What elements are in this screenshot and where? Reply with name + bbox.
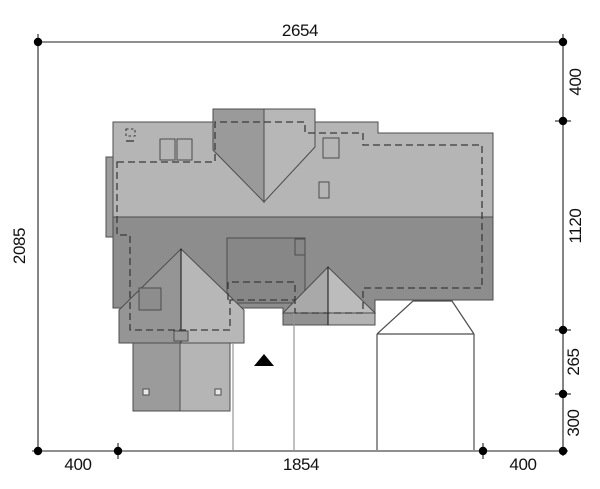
porch-post-left — [143, 389, 149, 395]
vent-north-right — [319, 182, 329, 198]
chimney-north-right — [323, 138, 339, 158]
dim-dot — [559, 38, 567, 46]
dim-label-bottom-3: 400 — [509, 455, 536, 474]
dim-label-left-total: 2085 — [10, 228, 29, 264]
dim-label-bottom-1: 400 — [64, 455, 91, 474]
south-roof-box-notch — [295, 239, 305, 255]
north-arrow — [254, 354, 274, 366]
dim-dot — [34, 38, 42, 46]
dim-dot — [559, 390, 567, 398]
chimney-north-left-b — [177, 139, 192, 160]
dim-dot — [559, 447, 567, 455]
roof-plan-canvas: 2654 2085 400 1120 265 300 400 1854 400 — [0, 0, 600, 489]
chimney-north-left-a — [160, 139, 175, 160]
pergola-outline — [377, 301, 474, 450]
house-roof — [106, 109, 493, 411]
dim-label-right-1: 400 — [566, 68, 585, 95]
porch-roof-west-half — [133, 343, 180, 411]
wing-eave-box — [174, 331, 188, 341]
dim-dot — [114, 447, 122, 455]
dim-dot — [34, 447, 42, 455]
roof-plan-drawing: 2654 2085 400 1120 265 300 400 1854 400 — [0, 0, 600, 489]
porch-post-right — [215, 389, 221, 395]
dim-label-bottom-2: 1854 — [283, 455, 319, 474]
dim-label-right-3: 265 — [564, 348, 583, 375]
dim-label-top-total: 2654 — [282, 21, 318, 40]
dim-label-right-2: 1120 — [566, 209, 585, 244]
south-gable-eave-right — [328, 313, 375, 325]
wing-chimney — [139, 288, 161, 310]
south-gable-eave-left — [283, 313, 328, 325]
porch-roof-east-half — [180, 343, 230, 411]
dim-dot — [559, 326, 567, 334]
dim-dot — [559, 117, 567, 125]
pergola-lines — [377, 301, 474, 450]
dim-label-right-4: 300 — [564, 409, 583, 436]
south-roof-box — [227, 238, 305, 303]
dim-dot — [479, 447, 487, 455]
